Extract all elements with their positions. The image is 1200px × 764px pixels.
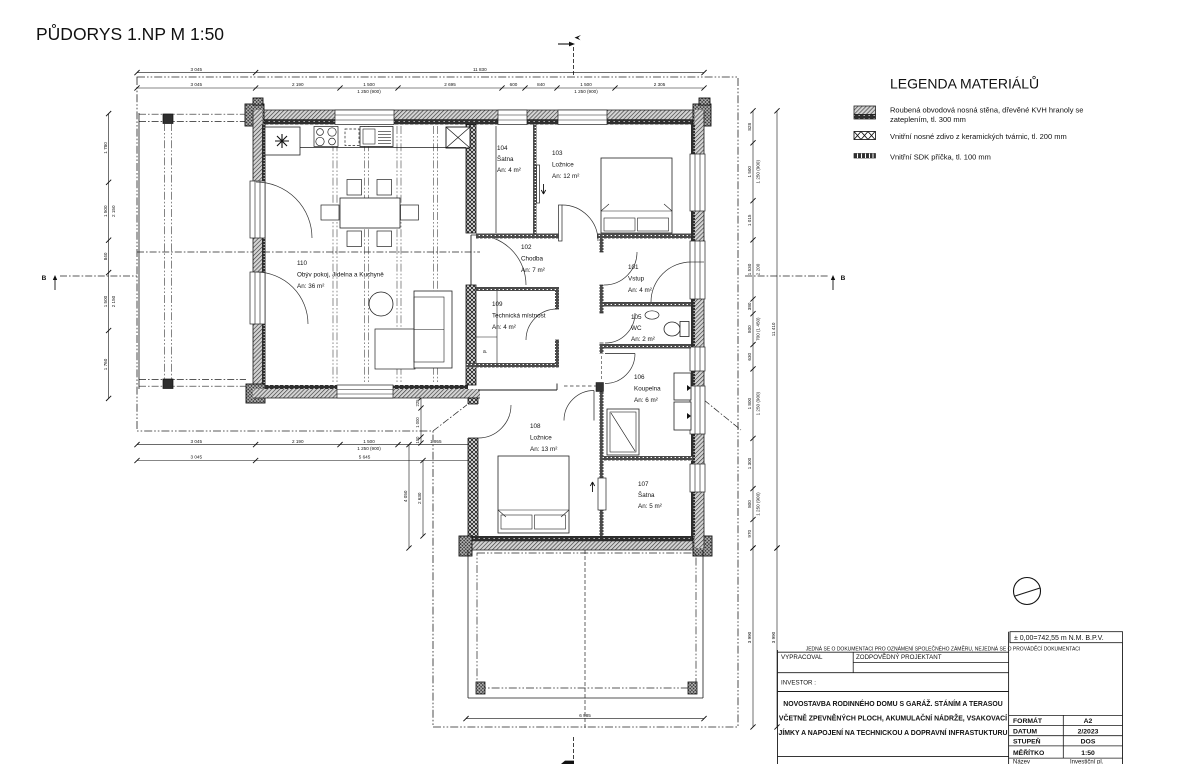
svg-text:225: 225 [415, 399, 420, 407]
svg-text:1 250 (900): 1 250 (900) [755, 391, 760, 415]
svg-text:B: B [841, 275, 846, 282]
svg-text:JÍMKY A NAPOJENÍ NA TECHNICKOU: JÍMKY A NAPOJENÍ NA TECHNICKOU A DOPRAVN… [779, 728, 1008, 737]
svg-text:700 (1 450): 700 (1 450) [755, 317, 760, 341]
svg-text:5 645: 5 645 [359, 455, 371, 460]
svg-text:2 305: 2 305 [654, 82, 666, 87]
svg-text:1 530: 1 530 [747, 263, 752, 275]
svg-text:ZODPOVĚDNÝ PROJEKTANT: ZODPOVĚDNÝ PROJEKTANT [856, 653, 942, 661]
svg-text:An: 36 m²: An: 36 m² [297, 283, 324, 290]
svg-text:630: 630 [747, 352, 752, 360]
svg-text:1 500: 1 500 [363, 82, 375, 87]
svg-text:3 990: 3 990 [747, 631, 752, 643]
svg-text:MĚŘÍTKO: MĚŘÍTKO [1013, 748, 1044, 757]
svg-text:103: 103 [552, 150, 563, 157]
svg-text:840: 840 [103, 252, 108, 260]
svg-text:110: 110 [297, 260, 308, 267]
svg-text:2 150: 2 150 [111, 205, 116, 217]
svg-text:An: 4 m²: An: 4 m² [628, 287, 652, 294]
svg-text:380: 380 [747, 302, 752, 310]
svg-text:An: 13 m²: An: 13 m² [530, 446, 557, 453]
svg-text:3 990: 3 990 [771, 631, 776, 643]
svg-text:1 760: 1 760 [103, 358, 108, 370]
svg-text:B: B [42, 275, 47, 282]
svg-text:Roubená obvodová nosná stěna,: Roubená obvodová nosná stěna, dřevěné KV… [890, 106, 1083, 115]
svg-text:1 250 (900): 1 250 (900) [755, 492, 760, 516]
svg-text:INVESTOR :: INVESTOR : [781, 680, 816, 687]
svg-text:Vnitřní nosné zdivo z keramick: Vnitřní nosné zdivo z keramických tvárni… [890, 132, 1067, 141]
svg-text:VYPRACOVAL: VYPRACOVAL [781, 654, 823, 661]
svg-text:1 500: 1 500 [103, 205, 108, 217]
svg-text:3 045: 3 045 [191, 439, 203, 444]
svg-text:Vnitřní SDK příčka, tl. 100 mm: Vnitřní SDK příčka, tl. 100 mm [890, 153, 991, 162]
svg-text:3 045: 3 045 [191, 82, 203, 87]
svg-text:828: 828 [747, 123, 752, 131]
svg-text:An: 6 m²: An: 6 m² [634, 397, 658, 404]
svg-text:1 250 (900): 1 250 (900) [357, 446, 381, 451]
svg-text:102: 102 [521, 244, 532, 251]
svg-text:3 045: 3 045 [191, 455, 203, 460]
svg-text:1 500: 1 500 [580, 82, 592, 87]
svg-text:DATUM: DATUM [1013, 728, 1037, 735]
svg-text:LEGENDA MATERIÁLŮ: LEGENDA MATERIÁLŮ [890, 75, 1039, 92]
svg-text:800: 800 [747, 325, 752, 333]
svg-text:WC: WC [631, 325, 642, 332]
svg-text:107: 107 [638, 481, 649, 488]
svg-text:1 780: 1 780 [103, 142, 108, 154]
svg-text:109: 109 [492, 301, 503, 308]
svg-text:1 300: 1 300 [747, 457, 752, 469]
svg-text:101: 101 [628, 264, 639, 271]
svg-text:105: 105 [631, 314, 642, 321]
svg-text:2 190: 2 190 [292, 439, 304, 444]
svg-text:± 0,00=742,55 m N.M. B.P.V.: ± 0,00=742,55 m N.M. B.P.V. [1014, 635, 1104, 642]
svg-text:Šatna: Šatna [638, 490, 655, 499]
svg-text:zateplením, tl. 300 mm: zateplením, tl. 300 mm [890, 115, 966, 124]
svg-text:1 800: 1 800 [747, 397, 752, 409]
svg-text:600: 600 [510, 82, 518, 87]
svg-text:STUPEŇ: STUPEŇ [1013, 737, 1041, 746]
svg-text:4 050: 4 050 [403, 490, 408, 502]
svg-text:11 830: 11 830 [473, 67, 487, 72]
svg-text:1 955: 1 955 [430, 439, 442, 444]
svg-text:1 500: 1 500 [363, 439, 375, 444]
svg-text:A2: A2 [1084, 718, 1093, 725]
svg-text:Ložnice: Ložnice [530, 435, 552, 442]
svg-text:800: 800 [747, 500, 752, 508]
svg-text:2 630: 2 630 [417, 492, 422, 504]
svg-text:Název: Název [1013, 760, 1030, 764]
svg-text:1 500: 1 500 [747, 166, 752, 178]
svg-text:An: 2 m²: An: 2 m² [631, 336, 655, 343]
svg-text:VČETNĚ ZPEVNĚNÝCH PLOCH, AKUMU: VČETNĚ ZPEVNĚNÝCH PLOCH, AKUMULAČNÍ NÁDR… [779, 714, 1008, 723]
svg-text:106: 106 [634, 374, 645, 381]
svg-text:NOVOSTAVBA RODINNÉHO DOMU S GA: NOVOSTAVBA RODINNÉHO DOMU S GARÁŽ. STÁNÍ… [783, 699, 1003, 708]
svg-text:An: 4 m²: An: 4 m² [492, 324, 516, 331]
svg-text:JEDNÁ SE O DOKUMENTACI PRO OZN: JEDNÁ SE O DOKUMENTACI PRO OZNÁMENÍ SPOL… [806, 645, 1081, 653]
svg-text:An: 12 m²: An: 12 m² [552, 173, 579, 180]
svg-text:2 150: 2 150 [111, 295, 116, 307]
svg-text:Obýv pokoj, Jídelna a Kuchyně: Obýv pokoj, Jídelna a Kuchyně [297, 272, 384, 279]
svg-text:Investiční pl.: Investiční pl. [1070, 760, 1104, 764]
svg-text:11 410: 11 410 [771, 322, 776, 336]
svg-text:Technická místnost: Technická místnost [492, 313, 546, 320]
svg-text:1 250 (900): 1 250 (900) [357, 89, 381, 94]
svg-text:1 250 (900): 1 250 (900) [574, 89, 598, 94]
svg-text:Ložnice: Ložnice [552, 162, 574, 169]
svg-text:840: 840 [537, 82, 545, 87]
svg-text:Šatna: Šatna [497, 154, 514, 163]
svg-text:2 200: 2 200 [755, 263, 760, 275]
svg-text:2/2023: 2/2023 [1078, 728, 1099, 735]
svg-text:DOS: DOS [1081, 739, 1096, 746]
svg-text:104: 104 [497, 145, 508, 152]
svg-text:2 190: 2 190 [292, 82, 304, 87]
svg-text:1:50: 1:50 [1081, 750, 1095, 757]
svg-text:970: 970 [747, 529, 752, 537]
svg-text:Koupelna: Koupelna [634, 386, 661, 393]
svg-text:a.: a. [483, 349, 487, 355]
svg-text:1 000: 1 000 [415, 417, 420, 428]
svg-text:Chodba: Chodba [521, 256, 544, 263]
svg-text:Vstup: Vstup [628, 276, 645, 283]
svg-text:An: 7 m²: An: 7 m² [521, 267, 545, 274]
svg-text:108: 108 [530, 423, 541, 430]
svg-text:FORMÁT: FORMÁT [1013, 716, 1043, 725]
svg-text:2 695: 2 695 [444, 82, 456, 87]
svg-text:An: 4 m²: An: 4 m² [497, 167, 521, 174]
svg-text:PŮDORYS 1.NP M 1:50: PŮDORYS 1.NP M 1:50 [36, 23, 224, 44]
svg-text:150: 150 [415, 436, 420, 444]
svg-text:3 045: 3 045 [191, 67, 203, 72]
svg-text:1 250 (900): 1 250 (900) [755, 160, 760, 184]
svg-text:1 015: 1 015 [747, 214, 752, 226]
svg-text:1 500: 1 500 [103, 295, 108, 307]
svg-text:An: 5 m²: An: 5 m² [638, 503, 662, 510]
